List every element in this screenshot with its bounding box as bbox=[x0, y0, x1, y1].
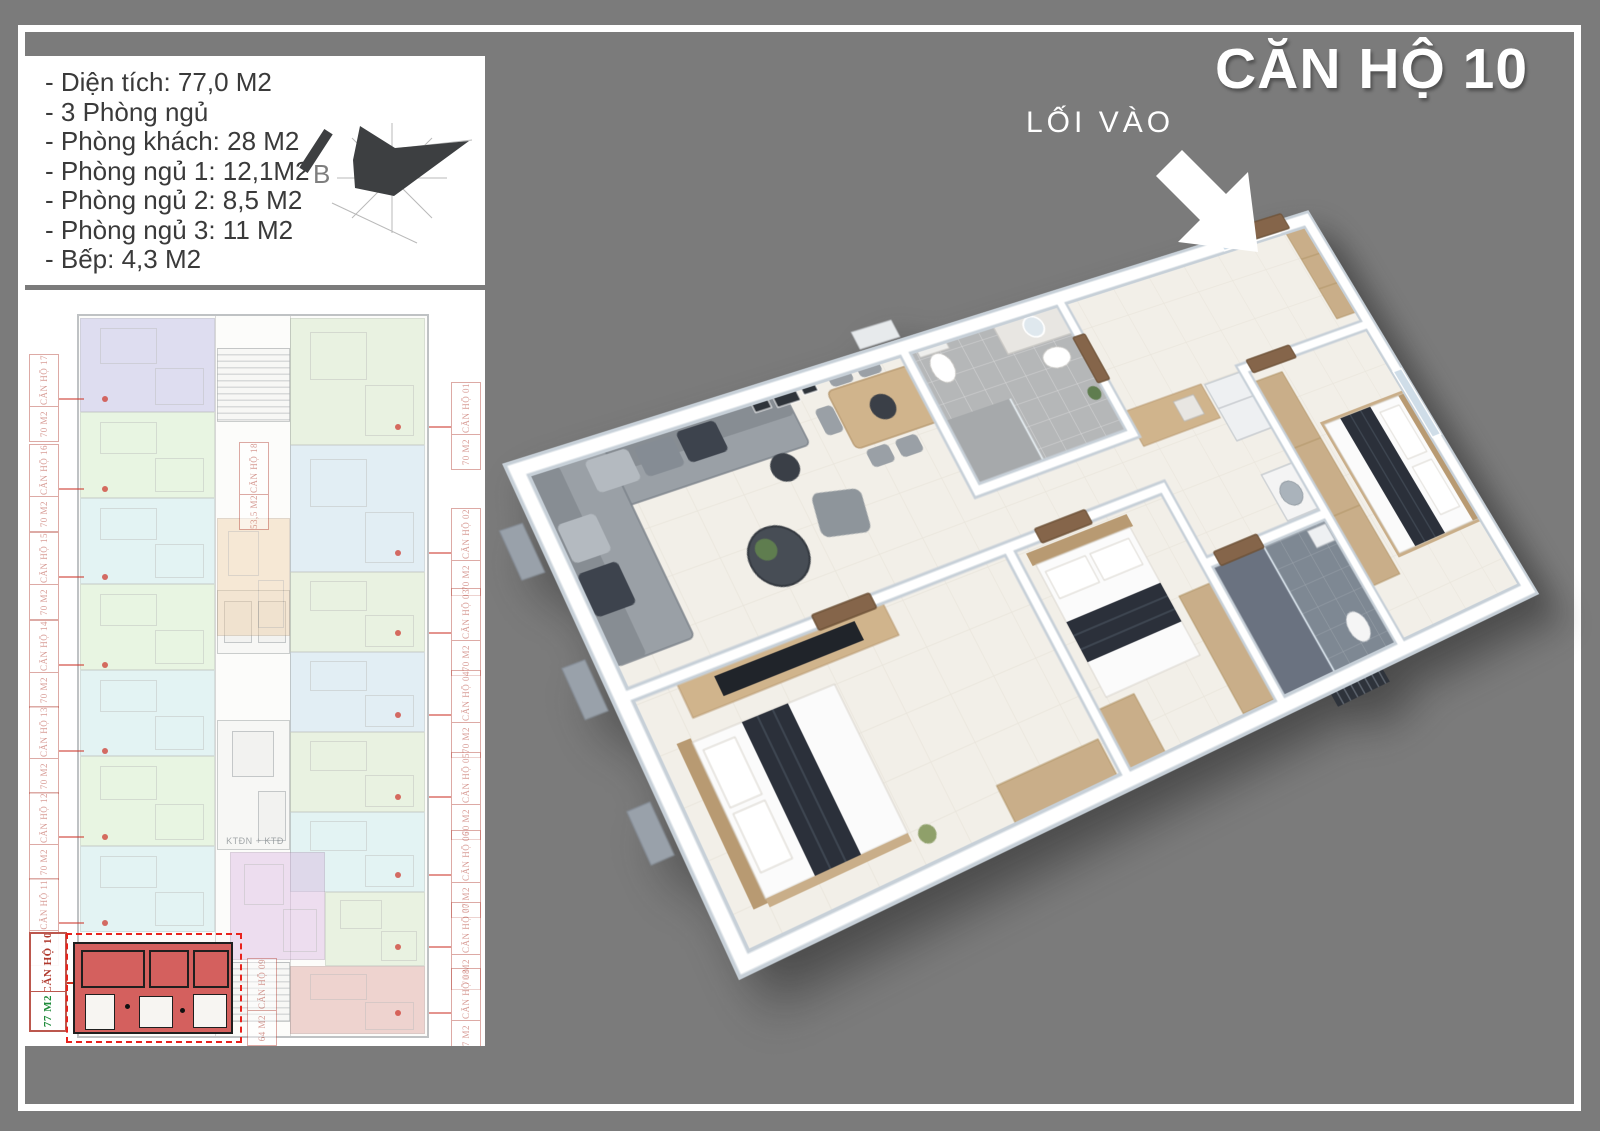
unit-label-12: CĂN HỘ 1270 M2 bbox=[29, 792, 59, 880]
unit-block-03 bbox=[290, 572, 425, 652]
unit-block-08 bbox=[290, 966, 425, 1034]
unit-label-05: CĂN HỘ 0570 M2 bbox=[451, 752, 481, 840]
unit-block-05 bbox=[290, 732, 425, 812]
floorplan-brochure: CĂN HỘ 10 LỐI VÀO - Diện tích: 77,0 M2 -… bbox=[0, 0, 1600, 1131]
apartment-3d-scene bbox=[505, 212, 1537, 977]
info-panel: - Diện tích: 77,0 M2 - 3 Phòng ngủ - Phò… bbox=[25, 56, 485, 285]
unit-label-10: CĂN HỘ 1077 M2 bbox=[29, 932, 67, 1032]
unit-block-02 bbox=[290, 445, 425, 572]
page-title: CĂN HỘ 10 bbox=[1215, 36, 1528, 102]
spec-line: - Phòng khách: 28 M2 bbox=[45, 127, 310, 157]
spec-line: - 3 Phòng ngủ bbox=[45, 98, 310, 128]
unit-label-16: CĂN HỘ 1670 M2 bbox=[29, 444, 59, 532]
corridor-wall bbox=[215, 316, 216, 1036]
unit-label-01: CĂN HỘ 0170 M2 bbox=[451, 382, 481, 470]
stairwell bbox=[217, 348, 290, 422]
apartment-specs: - Diện tích: 77,0 M2 - 3 Phòng ngủ - Phò… bbox=[45, 68, 310, 275]
unit-block-13 bbox=[80, 670, 215, 756]
unit-block-12 bbox=[80, 756, 215, 846]
unit-label-15: CĂN HỘ 1570 M2 bbox=[29, 532, 59, 620]
unit-label-03: CĂN HỘ 0370 M2 bbox=[451, 588, 481, 676]
spec-line: - Phòng ngủ 3: 11 M2 bbox=[45, 216, 310, 246]
spec-line: - Diện tích: 77,0 M2 bbox=[45, 68, 310, 98]
entrance-label: LỐI VÀO bbox=[1026, 106, 1174, 140]
unit-block-15 bbox=[80, 498, 215, 584]
unit-block-14 bbox=[80, 584, 215, 670]
spec-line: - Bếp: 4,3 M2 bbox=[45, 245, 310, 275]
unit-label-18: CĂN HỘ 1853,5 M2 bbox=[239, 442, 269, 530]
unit-block-17 bbox=[80, 318, 215, 412]
apartment-3d-plan bbox=[505, 212, 1537, 977]
unit-label-02: CĂN HỘ 0270 M2 bbox=[451, 508, 481, 596]
building-plan-panel: KTĐN + KTĐ CĂN HỘ 1770 M2CĂN HỘ 1670 M2C… bbox=[25, 290, 485, 1046]
unit-label-08: CĂN HỘ 0877 M2 bbox=[451, 968, 481, 1046]
spec-line: - Phòng ngủ 1: 12,1M2 bbox=[45, 157, 310, 187]
compass-north-label: B bbox=[313, 159, 330, 189]
unit-label-14: CĂN HỘ 1470 M2 bbox=[29, 620, 59, 708]
unit-label-04: CĂN HỘ 0470 M2 bbox=[451, 670, 481, 758]
unit-block-16 bbox=[80, 412, 215, 498]
unit-block-18 bbox=[217, 518, 290, 636]
service-block bbox=[217, 720, 290, 850]
entrance-arrow-icon bbox=[1152, 146, 1264, 263]
unit-block-07 bbox=[325, 892, 425, 966]
unit-block-10 bbox=[73, 942, 233, 1034]
unit-block-04 bbox=[290, 652, 425, 732]
unit-label-13: CĂN HỘ 1370 M2 bbox=[29, 706, 59, 794]
unit-block-09 bbox=[230, 852, 325, 960]
unit-label-17: CĂN HỘ 1770 M2 bbox=[29, 354, 59, 442]
unit-block-11 bbox=[80, 846, 215, 932]
elevator-room-label: KTĐN + KTĐ bbox=[185, 836, 325, 846]
unit-label-09: CĂN HỘ 0964 M2 bbox=[247, 958, 277, 1046]
compass-icon: B bbox=[297, 108, 482, 283]
spec-line: - Phòng ngủ 2: 8,5 M2 bbox=[45, 186, 310, 216]
unit-block-01 bbox=[290, 318, 425, 445]
